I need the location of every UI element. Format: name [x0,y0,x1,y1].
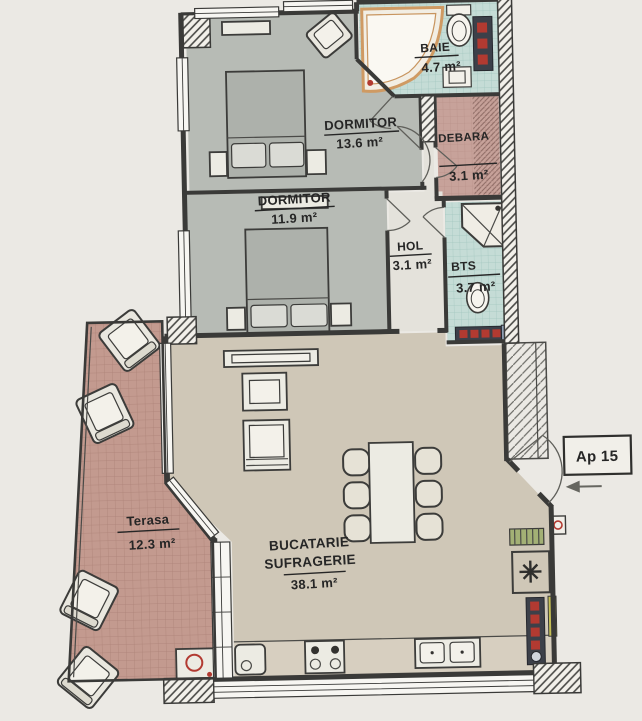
stove [305,641,345,674]
floor-plan-page: BAIE 4.7 m² DORMITOR 13.6 m² DEBARA 3.1 … [0,0,642,721]
wall-hatch-block [164,678,214,703]
stairwell [506,342,548,459]
entry-radiator [510,528,544,545]
coffee-table [242,373,287,411]
wall-hatch-block [420,96,435,142]
svg-text:BAIE: BAIE [420,40,451,56]
svg-text:11.9 m²: 11.9 m² [271,209,318,227]
armchair-living [243,420,290,471]
wall-hatch-block [183,14,211,48]
radiator-baie-cell [477,38,487,48]
svg-text:3.7 m²: 3.7 m² [456,278,497,295]
desk-dormitor-mare [222,21,270,35]
svg-text:Ap 15: Ap 15 [576,448,619,466]
ventilation-star-icon [512,551,550,593]
svg-text:Terasa: Terasa [126,511,170,528]
floor-plan-svg: BAIE 4.7 m² DORMITOR 13.6 m² DEBARA 3.1 … [0,0,642,721]
svg-text:3.1 m²: 3.1 m² [449,167,490,184]
tv-cabinet [224,349,318,367]
svg-text:BTS: BTS [451,258,477,273]
dining-table-set [343,442,443,544]
washing-machine [176,648,215,680]
apartment-badge: Ap 15 [564,436,632,475]
wall-hatch-block [533,663,581,694]
radiator-baie-cell [477,22,487,32]
svg-text:4.7 m²: 4.7 m² [421,58,462,75]
wall-radiator-living [526,597,545,664]
kitchen-sink [415,638,481,668]
svg-text:HOL: HOL [397,238,424,253]
svg-text:13.6 m²: 13.6 m² [336,134,384,152]
svg-text:38.1 m²: 38.1 m² [290,575,338,593]
svg-text:3.1 m²: 3.1 m² [392,256,433,273]
wall-hatch-block [167,317,197,345]
toilet-baie [447,5,472,46]
svg-text:12.3 m²: 12.3 m² [128,535,176,553]
kitchen-appliance [235,644,266,675]
radiator-baie-cell [478,54,488,64]
